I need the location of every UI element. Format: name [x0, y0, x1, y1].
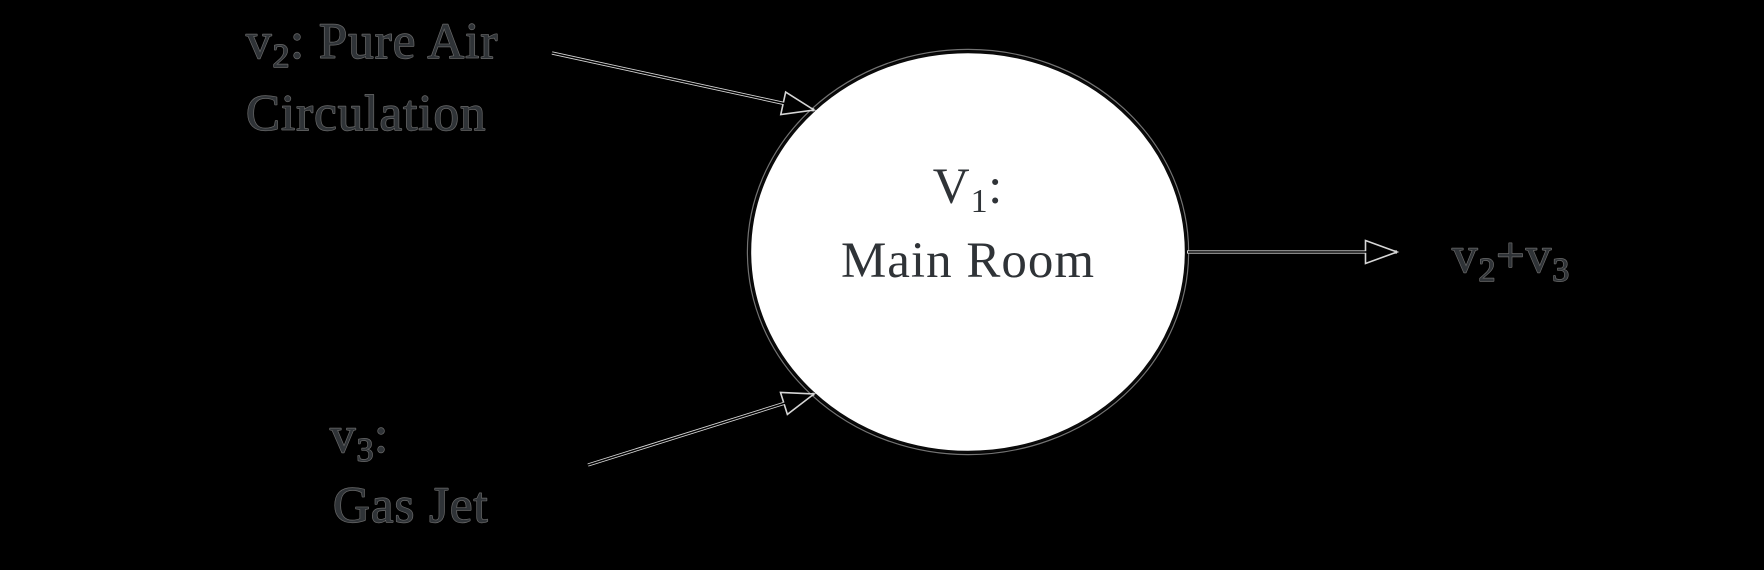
process-flow-diagram: v2: Pure Air Circulation v3: Gas Jet V1:… [0, 0, 1764, 570]
main-room-label-line1: V1: [933, 159, 1004, 220]
inflow-label-pure-air-line2: Circulation [246, 86, 486, 142]
inflow-label-gas-jet-line2: Gas Jet [333, 478, 489, 534]
outflow-label: v2+v3 [1452, 228, 1570, 289]
main-room-label-line2: Main Room [841, 233, 1095, 289]
